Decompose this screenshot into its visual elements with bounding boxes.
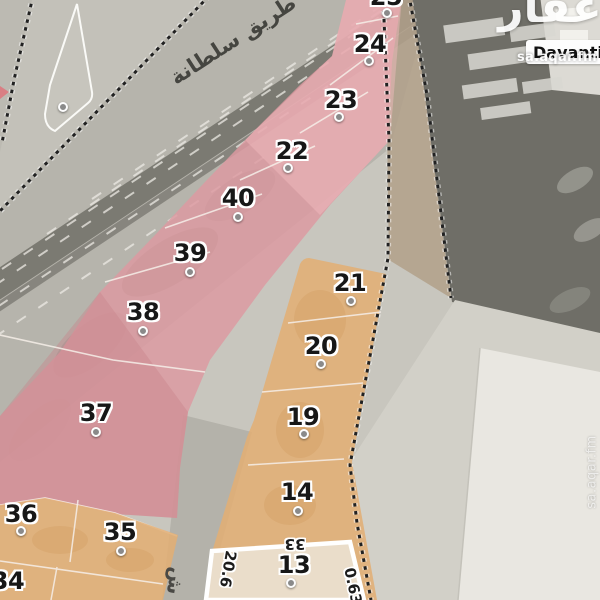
plot-marker-21[interactable] — [346, 296, 356, 306]
plot-marker-38[interactable] — [138, 326, 148, 336]
map-viewport: طريق سلطانة ش 25 24 23 22 40 39 38 37 21… — [0, 0, 600, 600]
plot-label-14[interactable]: 14 — [281, 478, 313, 506]
white-rooftop — [458, 348, 600, 600]
plot-marker-19[interactable] — [299, 429, 309, 439]
plot-label-19[interactable]: 19 — [287, 403, 319, 431]
dimension-top: 33 — [285, 535, 306, 553]
plot-marker-35[interactable] — [116, 546, 126, 556]
plot-marker-36[interactable] — [16, 526, 26, 536]
plot-marker-22[interactable] — [283, 163, 293, 173]
plot-marker-25[interactable] — [382, 8, 392, 18]
watermark-side: sa.aqar.fm — [585, 435, 600, 509]
plot-label-21[interactable]: 21 — [334, 269, 366, 297]
plot-marker-24[interactable] — [364, 56, 374, 66]
street-name-letter: ش — [162, 565, 190, 596]
plot-marker-23[interactable] — [334, 112, 344, 122]
plot-label-13[interactable]: 13 — [278, 551, 310, 579]
plot-label-22[interactable]: 22 — [276, 137, 308, 165]
plot-label-35[interactable]: 35 — [104, 518, 136, 546]
plot-label-39[interactable]: 39 — [174, 239, 206, 267]
plot-marker-20[interactable] — [316, 359, 326, 369]
plot-marker-37[interactable] — [91, 427, 101, 437]
watermark-top: sa.aqar.fm — [517, 50, 600, 65]
plot-marker-40[interactable] — [233, 212, 243, 222]
plot-marker-white-plot[interactable] — [58, 102, 68, 112]
plot-label-38[interactable]: 38 — [127, 298, 159, 326]
plot-label-34[interactable]: 34 — [0, 567, 24, 595]
aqar-logo: عقار — [498, 0, 600, 33]
plot-label-40[interactable]: 40 — [222, 184, 254, 212]
plot-marker-39[interactable] — [185, 267, 195, 277]
plot-marker-14[interactable] — [293, 506, 303, 516]
plot-label-36[interactable]: 36 — [5, 500, 37, 528]
plot-label-20[interactable]: 20 — [305, 332, 337, 360]
plot-label-23[interactable]: 23 — [325, 86, 357, 114]
plot-label-24[interactable]: 24 — [354, 30, 386, 58]
plot-label-37[interactable]: 37 — [80, 399, 112, 427]
plot-marker-13[interactable] — [286, 578, 296, 588]
